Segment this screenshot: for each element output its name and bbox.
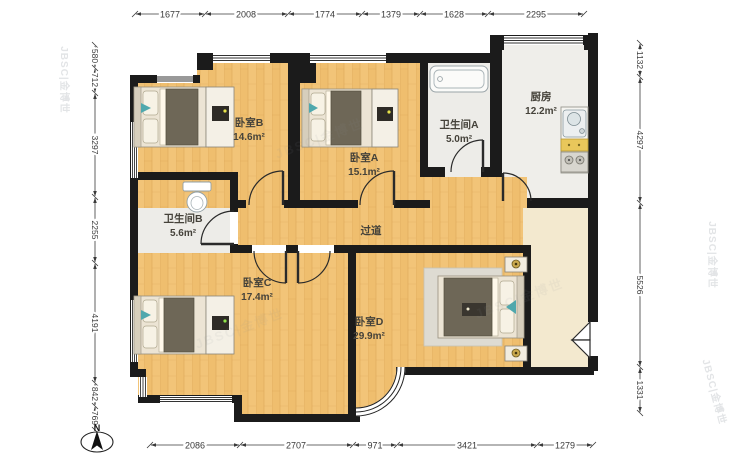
room-area-kitchen: 12.2m² — [525, 106, 557, 117]
dim-value: 580 — [90, 49, 100, 63]
dimension-labels-bottom: 2086 2707 971 3421 1279 — [185, 441, 575, 451]
north-compass: N — [81, 423, 113, 452]
room-name-bath-a: 卫生间A — [439, 118, 478, 131]
floor-plan-svg: 1677 2008 1774 1379 1628 2295 2086 2707 … — [0, 0, 746, 460]
window — [310, 53, 386, 63]
room-name-bath-b: 卫生间B — [163, 212, 202, 225]
dim-value: 4191 — [90, 314, 100, 333]
room-area-bedroom-c: 17.4m² — [241, 292, 273, 303]
dim-value: 1628 — [444, 10, 464, 20]
dim-value: 2707 — [286, 441, 306, 451]
watermark-text: JBSC|金博世 — [58, 46, 71, 113]
dim-value: 712 — [90, 73, 100, 87]
dimension-chain-right — [637, 40, 643, 416]
room-area-bedroom-a: 15.1m² — [348, 167, 380, 178]
window — [213, 53, 270, 63]
room-name-bedroom-c: 卧室C — [243, 276, 272, 289]
dim-value: 842 — [90, 387, 100, 401]
dim-value: 1279 — [555, 441, 575, 451]
dim-value: 971 — [367, 441, 382, 451]
dim-value: 1132 — [635, 51, 645, 70]
dim-value: 3297 — [90, 136, 100, 155]
room-name-corridor: 过道 — [361, 224, 382, 237]
dim-value: 2295 — [526, 10, 546, 20]
room-name-bedroom-d: 卧室D — [355, 315, 384, 328]
room-area-bedroom-b: 14.6m² — [233, 132, 265, 143]
window — [139, 377, 147, 397]
room-name-bedroom-b: 卧室B — [235, 116, 264, 129]
dim-value: 1774 — [315, 10, 335, 20]
room-area-bedroom-d: 29.9m² — [353, 331, 385, 342]
dimension-labels-top: 1677 2008 1774 1379 1628 2295 — [160, 10, 546, 20]
room-area-bath-a: 5.0m² — [446, 134, 473, 145]
corridor-kitchen-front-floor — [420, 177, 527, 208]
watermark-text: JBSC|金博世 — [699, 358, 729, 427]
bed-bedroom-c — [134, 296, 234, 354]
dim-value: 3421 — [457, 441, 477, 451]
dim-value: 2086 — [185, 441, 205, 451]
kitchen-stove — [561, 152, 588, 172]
dim-value: 1331 — [635, 381, 645, 400]
watermark-text: JBSC|金博世 — [706, 221, 719, 288]
room-name-kitchen: 厨房 — [531, 90, 552, 103]
dim-value: 2008 — [236, 10, 256, 20]
bathtub — [430, 66, 488, 92]
room-name-bedroom-a: 卧室A — [350, 151, 379, 164]
dim-value: 4297 — [635, 131, 645, 150]
dimension-chain-top — [132, 11, 587, 17]
window — [157, 75, 193, 83]
room-area-bath-b: 5.6m² — [170, 228, 197, 239]
window — [160, 396, 232, 403]
dim-value: 1677 — [160, 10, 180, 20]
dim-value: 2255 — [90, 221, 100, 240]
north-label: N — [94, 423, 101, 433]
dim-value: 1379 — [381, 10, 401, 20]
dim-value: 5526 — [635, 276, 645, 295]
window — [504, 36, 583, 45]
bed-bedroom-b — [134, 87, 234, 147]
floor-plan-image: 1677 2008 1774 1379 1628 2295 2086 2707 … — [0, 0, 746, 460]
kitchen-counter — [561, 107, 588, 173]
